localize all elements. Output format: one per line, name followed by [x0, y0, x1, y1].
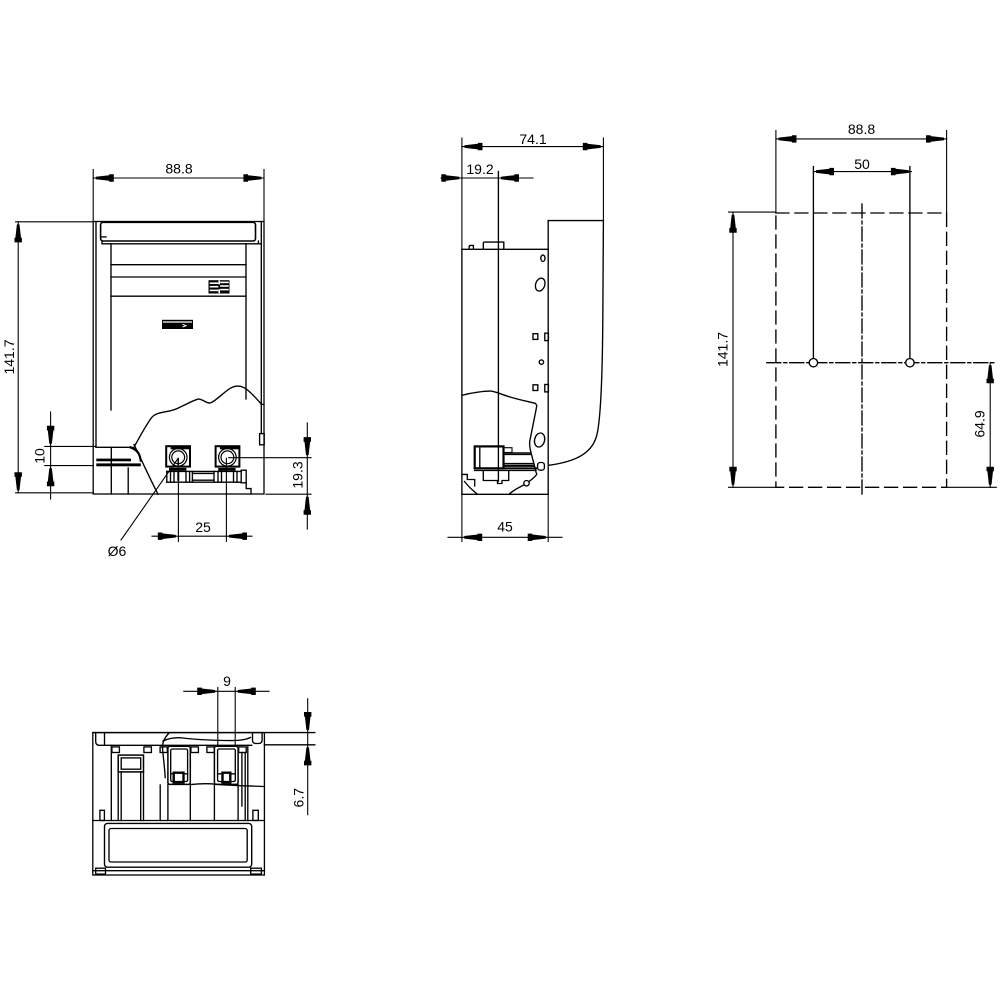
svg-text:19.3: 19.3 — [290, 461, 306, 488]
svg-text:25: 25 — [195, 519, 211, 535]
svg-text:88.8: 88.8 — [165, 161, 192, 177]
svg-text:141.7: 141.7 — [715, 332, 731, 367]
svg-text:19.2: 19.2 — [466, 161, 493, 177]
svg-text:10: 10 — [32, 448, 48, 464]
svg-text:45: 45 — [497, 519, 513, 535]
svg-text:6.7: 6.7 — [290, 788, 306, 808]
svg-text:9: 9 — [223, 673, 231, 689]
svg-text:141.7: 141.7 — [1, 339, 17, 374]
svg-text:Ø6: Ø6 — [108, 543, 127, 559]
svg-text:50: 50 — [854, 156, 870, 172]
svg-text:64.9: 64.9 — [972, 410, 988, 437]
svg-text:74.1: 74.1 — [519, 131, 546, 147]
svg-text:88.8: 88.8 — [848, 121, 875, 137]
